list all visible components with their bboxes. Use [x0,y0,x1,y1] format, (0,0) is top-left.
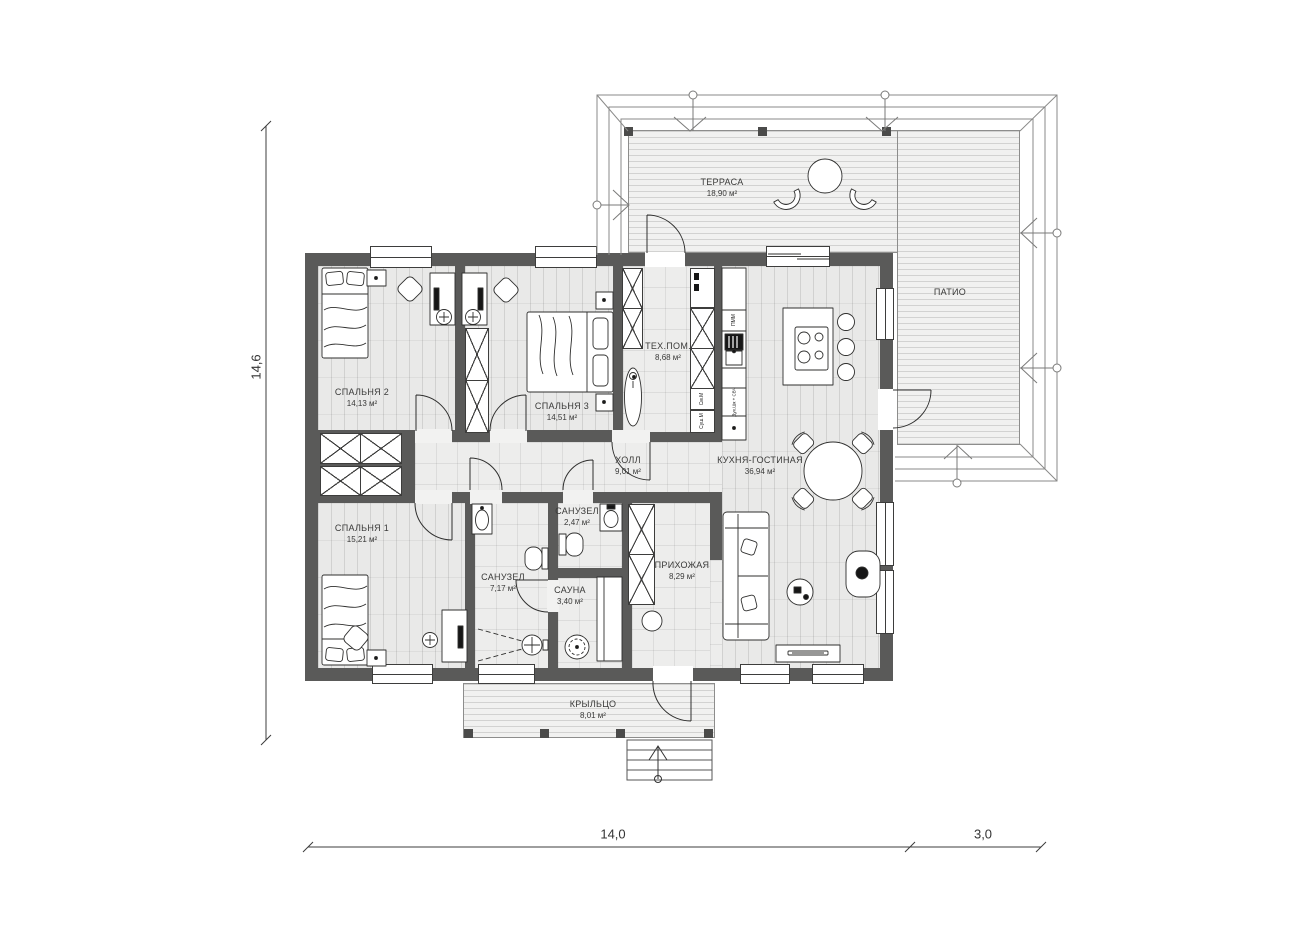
terrace-chair [774,189,805,215]
plan-linework [0,0,1316,931]
bar-stool [838,364,855,381]
entry-pouf [642,611,662,631]
room-label-sauna: САУНА 3,40 м² [554,585,586,607]
toilet-wc [559,533,583,556]
door-wc [563,460,593,490]
toilet-bathroom [525,547,548,570]
door-patio [893,390,931,428]
door-entrance [653,681,691,721]
room-label-bathroom: САНУЗЕЛ 7,17 м² [481,572,525,594]
cabinet-knobs [694,273,699,291]
label-dryer: Суш.М [699,413,705,429]
door-terrace [647,215,685,253]
desk-bedroom2 [430,273,455,325]
water-heater [625,368,642,426]
room-label-porch: КРЫЛЬЦО 8,01 м² [570,699,617,721]
armchair-bedroom3 [492,276,520,304]
terrace-chair [845,189,876,215]
bar-stool [838,314,855,331]
sofa [723,512,769,640]
room-label-terrace: ТЕРРАСА 18,90 м² [700,177,743,199]
door-bathroom [470,458,502,490]
sauna-stove [565,635,589,659]
room-label-kitchen-living: КУХНЯ-ГОСТИНАЯ 36,94 м² [717,455,803,477]
tv-console [776,645,840,662]
armchair-living [846,551,880,597]
slider-lines [768,254,830,259]
bar-stool [838,339,855,356]
label-dishwasher: ПММ [731,314,737,326]
armchair-bedroom2 [396,275,424,303]
floor-plan: ТЕРРАСА 18,90 м² ПАТИО СПАЛЬНЯ 2 14,13 м… [0,0,1316,931]
room-label-tech: ТЕХ.ПОМ. 8,68 м² [645,341,691,363]
kitchen-sink [725,334,743,365]
door-bedroom3 [490,395,526,431]
door-bedroom1 [415,503,452,540]
room-label-patio: ПАТИО [934,287,966,299]
furniture [322,159,880,666]
door-bedroom2 [416,395,452,431]
room-label-entry: ПРИХОЖАЯ 8,29 м² [655,560,710,582]
dimension-left: 14,6 [249,354,264,379]
washbasin-wc [600,504,622,531]
shower [478,629,548,661]
sauna-bench [597,577,622,661]
dining-table [804,442,862,500]
desk-bedroom3 [462,273,487,325]
terrace-table [808,159,842,193]
porch-steps [627,740,712,783]
roof-outline [597,95,1057,481]
washbasin-bathroom [472,504,492,534]
bed-bedroom3 [527,312,613,392]
desk-bedroom1 [423,610,468,662]
bed-bedroom2 [322,268,368,358]
dimension-bottom-patio: 3,0 [974,827,992,842]
label-oven-microwave: Дух.Шк + СВЧ [732,387,737,416]
label-washer: См.М [699,393,705,406]
coffee-table [787,579,813,605]
room-label-bedroom2: СПАЛЬНЯ 2 14,13 м² [335,387,389,409]
room-label-bedroom3: СПАЛЬНЯ 3 14,51 м² [535,401,589,423]
room-label-wc: САНУЗЕЛ 2,47 м² [555,506,599,528]
roof-markers [593,91,1061,487]
dimension-bottom-main: 14,0 [600,827,625,842]
room-label-bedroom1: СПАЛЬНЯ 1 15,21 м² [335,523,389,545]
room-label-hall: ХОЛЛ 9,01 м² [615,455,641,477]
bed-bedroom1 [322,575,368,665]
kitchen-island [783,308,833,385]
